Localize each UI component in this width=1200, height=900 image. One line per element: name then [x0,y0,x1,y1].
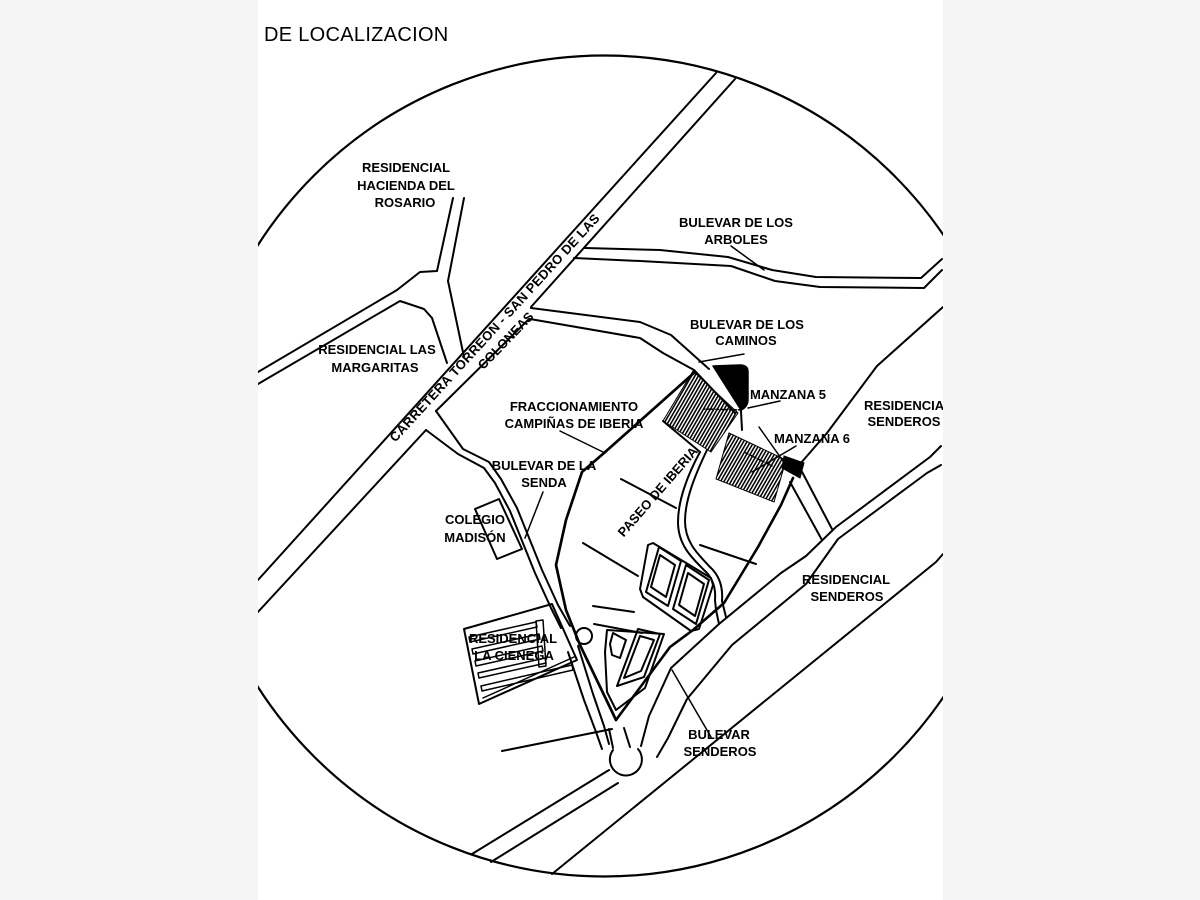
svg-text:FRACCIONAMIENTO: FRACCIONAMIENTO [510,399,638,414]
svg-text:SENDEROS: SENDEROS [684,744,757,759]
svg-text:BULEVAR DE LOS: BULEVAR DE LOS [679,215,793,230]
svg-text:RESIDENCIAL: RESIDENCIAL [469,631,557,646]
svg-text:MARGARITAS: MARGARITAS [331,360,418,375]
svg-text:MANZANA 5: MANZANA 5 [750,387,826,402]
svg-text:DE LOCALIZACION: DE LOCALIZACION [264,24,449,46]
svg-text:LA CIENEGA: LA CIENEGA [474,648,554,663]
svg-text:MADISÓN: MADISÓN [444,530,505,545]
svg-text:COLEGIO: COLEGIO [445,512,505,527]
svg-text:BULEVAR: BULEVAR [688,727,750,742]
svg-text:RESIDENCIAL: RESIDENCIAL [802,572,890,587]
svg-text:CAMINOS: CAMINOS [715,333,777,348]
svg-text:RESIDENCIAL: RESIDENCIAL [864,398,952,413]
svg-text:SENDEROS: SENDEROS [868,414,941,429]
svg-text:ROSARIO: ROSARIO [375,195,436,210]
svg-text:CAMPIÑAS DE IBERIA: CAMPIÑAS DE IBERIA [505,416,644,431]
svg-text:ARBOLES: ARBOLES [704,232,768,247]
svg-text:RESIDENCIAL: RESIDENCIAL [362,160,450,175]
svg-text:HACIENDA DEL: HACIENDA DEL [357,178,455,193]
svg-text:BULEVAR DE LA: BULEVAR DE LA [492,458,597,473]
svg-text:BULEVAR DE LOS: BULEVAR DE LOS [690,317,804,332]
svg-text:RESIDENCIAL LAS: RESIDENCIAL LAS [318,342,436,357]
svg-text:MANZANA 6: MANZANA 6 [774,431,850,446]
svg-text:SENDA: SENDA [521,475,567,490]
svg-text:SENDEROS: SENDEROS [811,589,884,604]
